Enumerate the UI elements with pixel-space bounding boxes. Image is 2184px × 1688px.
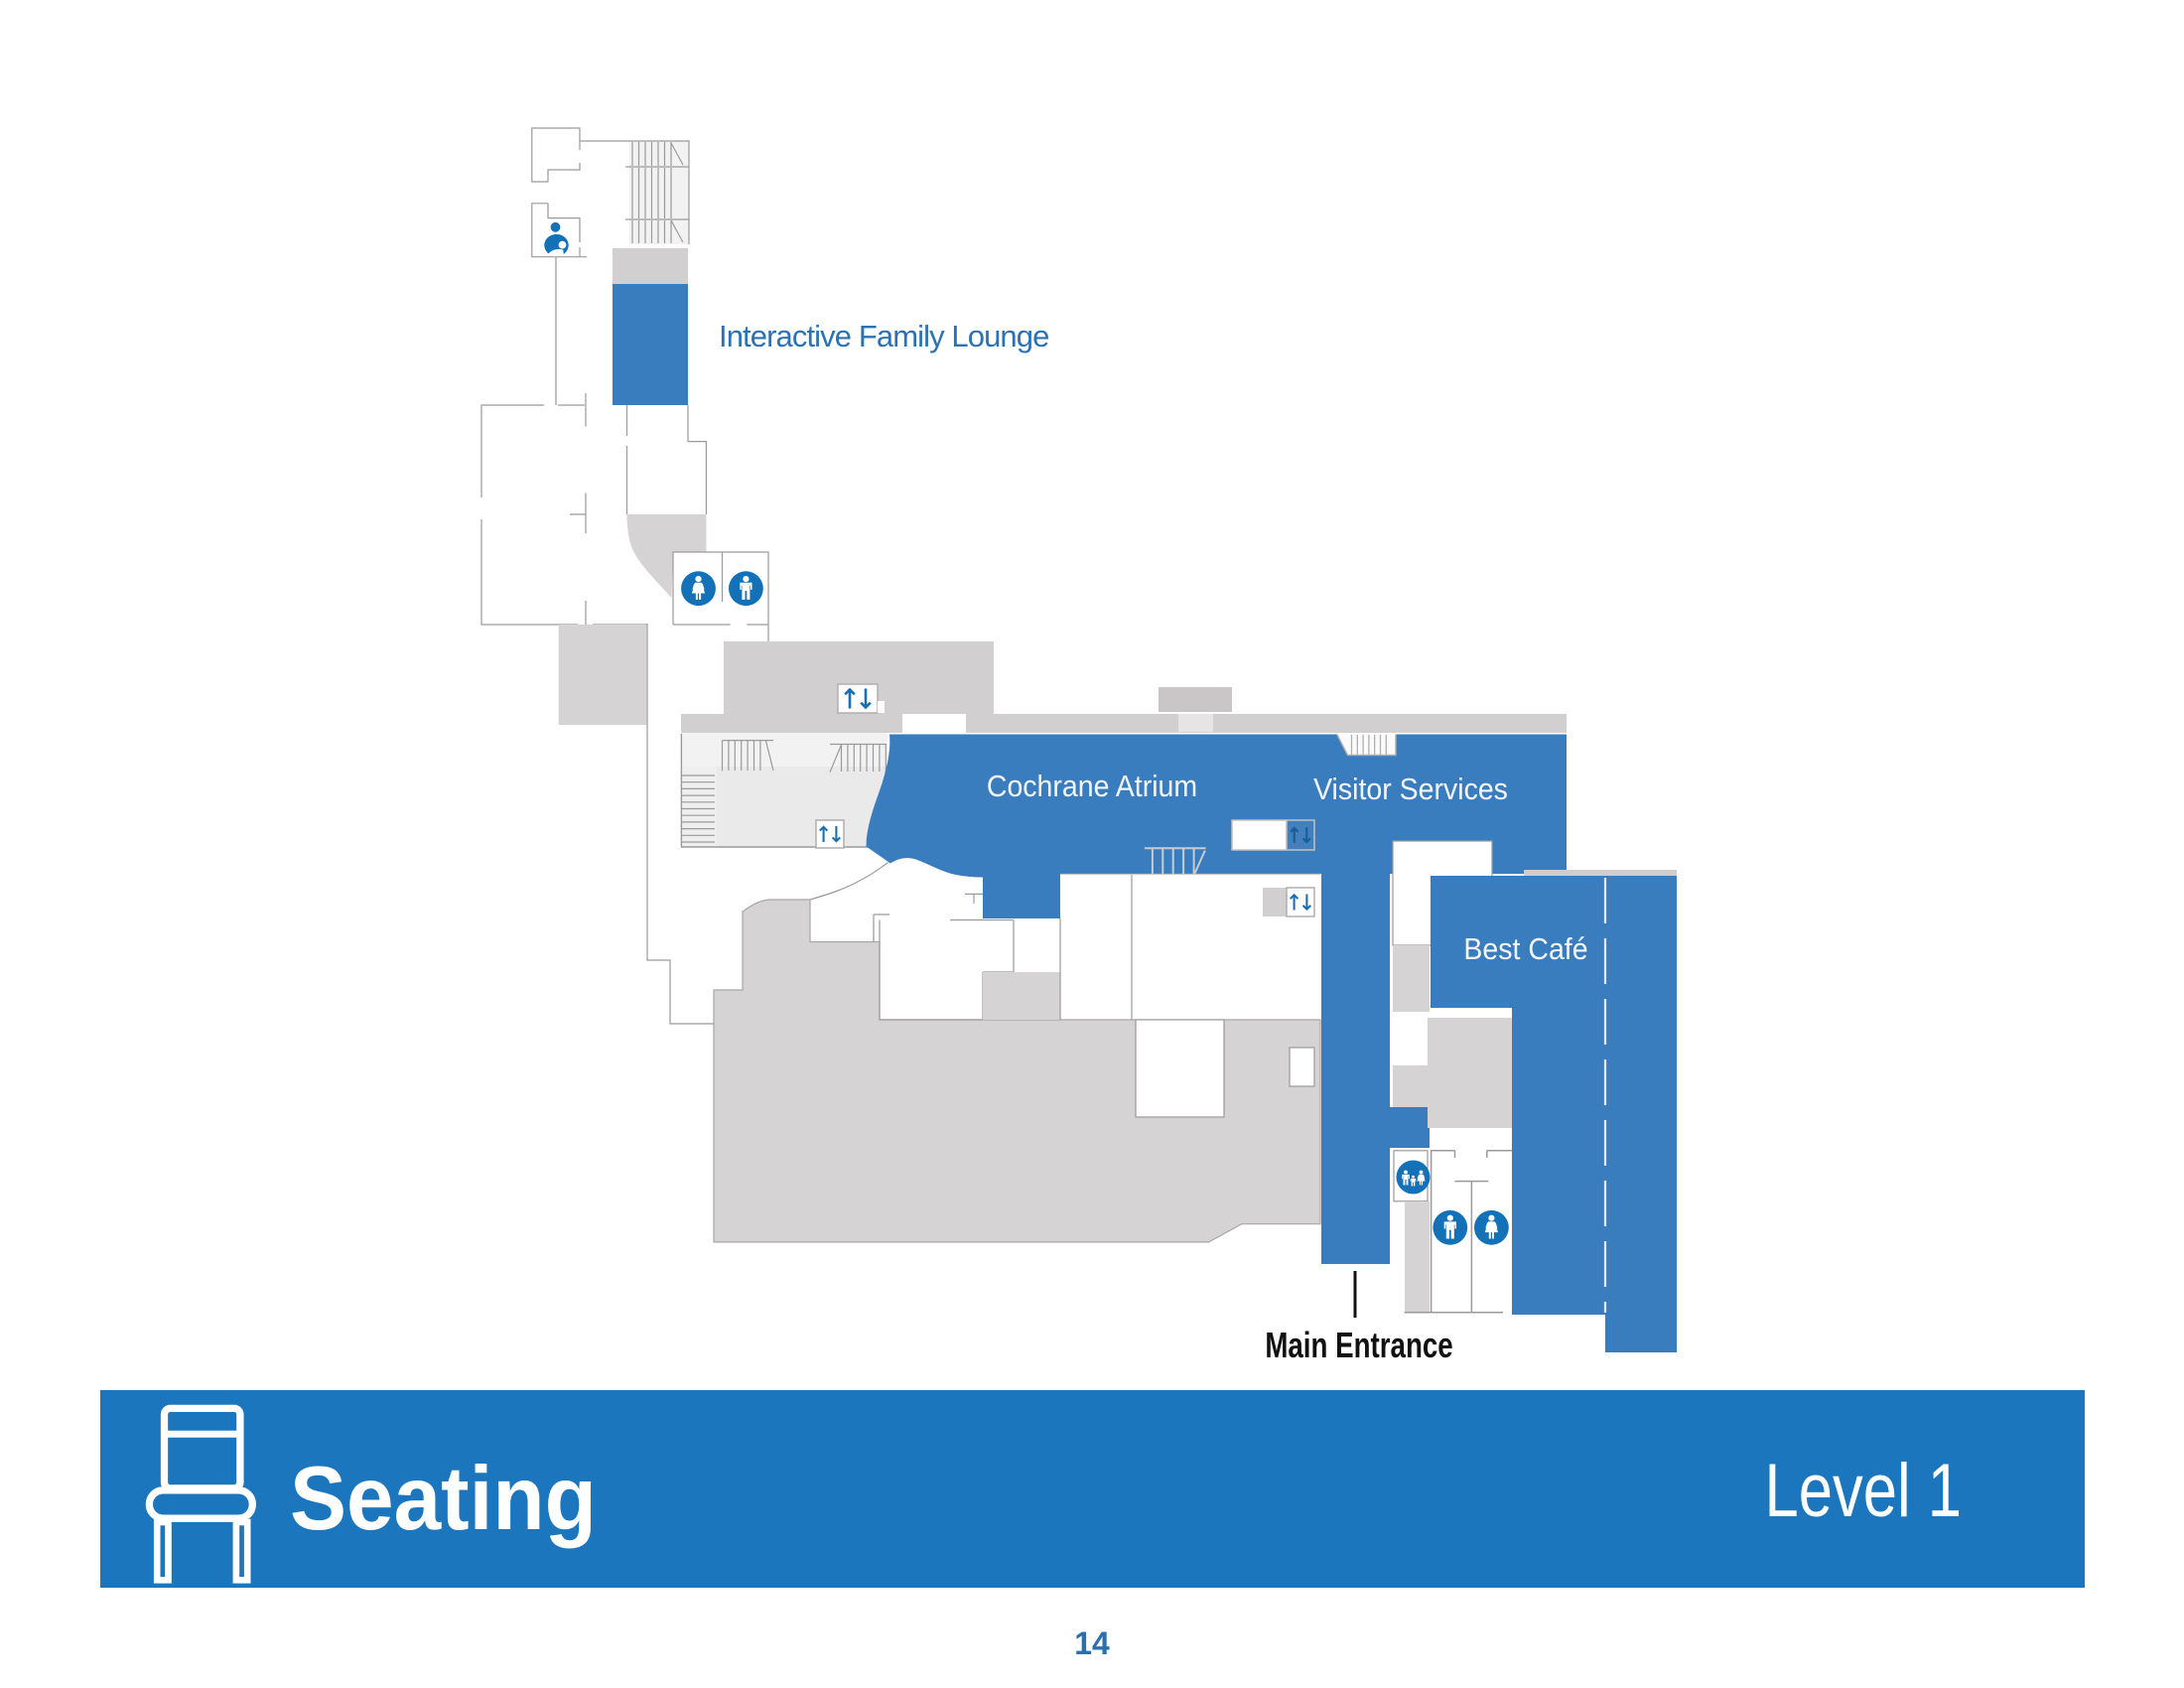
svg-text:Interactive Family Lounge: Interactive Family Lounge <box>719 319 1048 353</box>
svg-text:Main Entrance: Main Entrance <box>1265 1326 1452 1365</box>
svg-text:Best Café: Best Café <box>1463 932 1587 966</box>
svg-text:14: 14 <box>1074 1625 1110 1661</box>
svg-text:Seating: Seating <box>290 1448 597 1549</box>
svg-text:Level 1: Level 1 <box>1765 1448 1962 1533</box>
svg-text:Cochrane Atrium: Cochrane Atrium <box>987 770 1197 803</box>
svg-text:Visitor Services: Visitor Services <box>1313 773 1508 806</box>
